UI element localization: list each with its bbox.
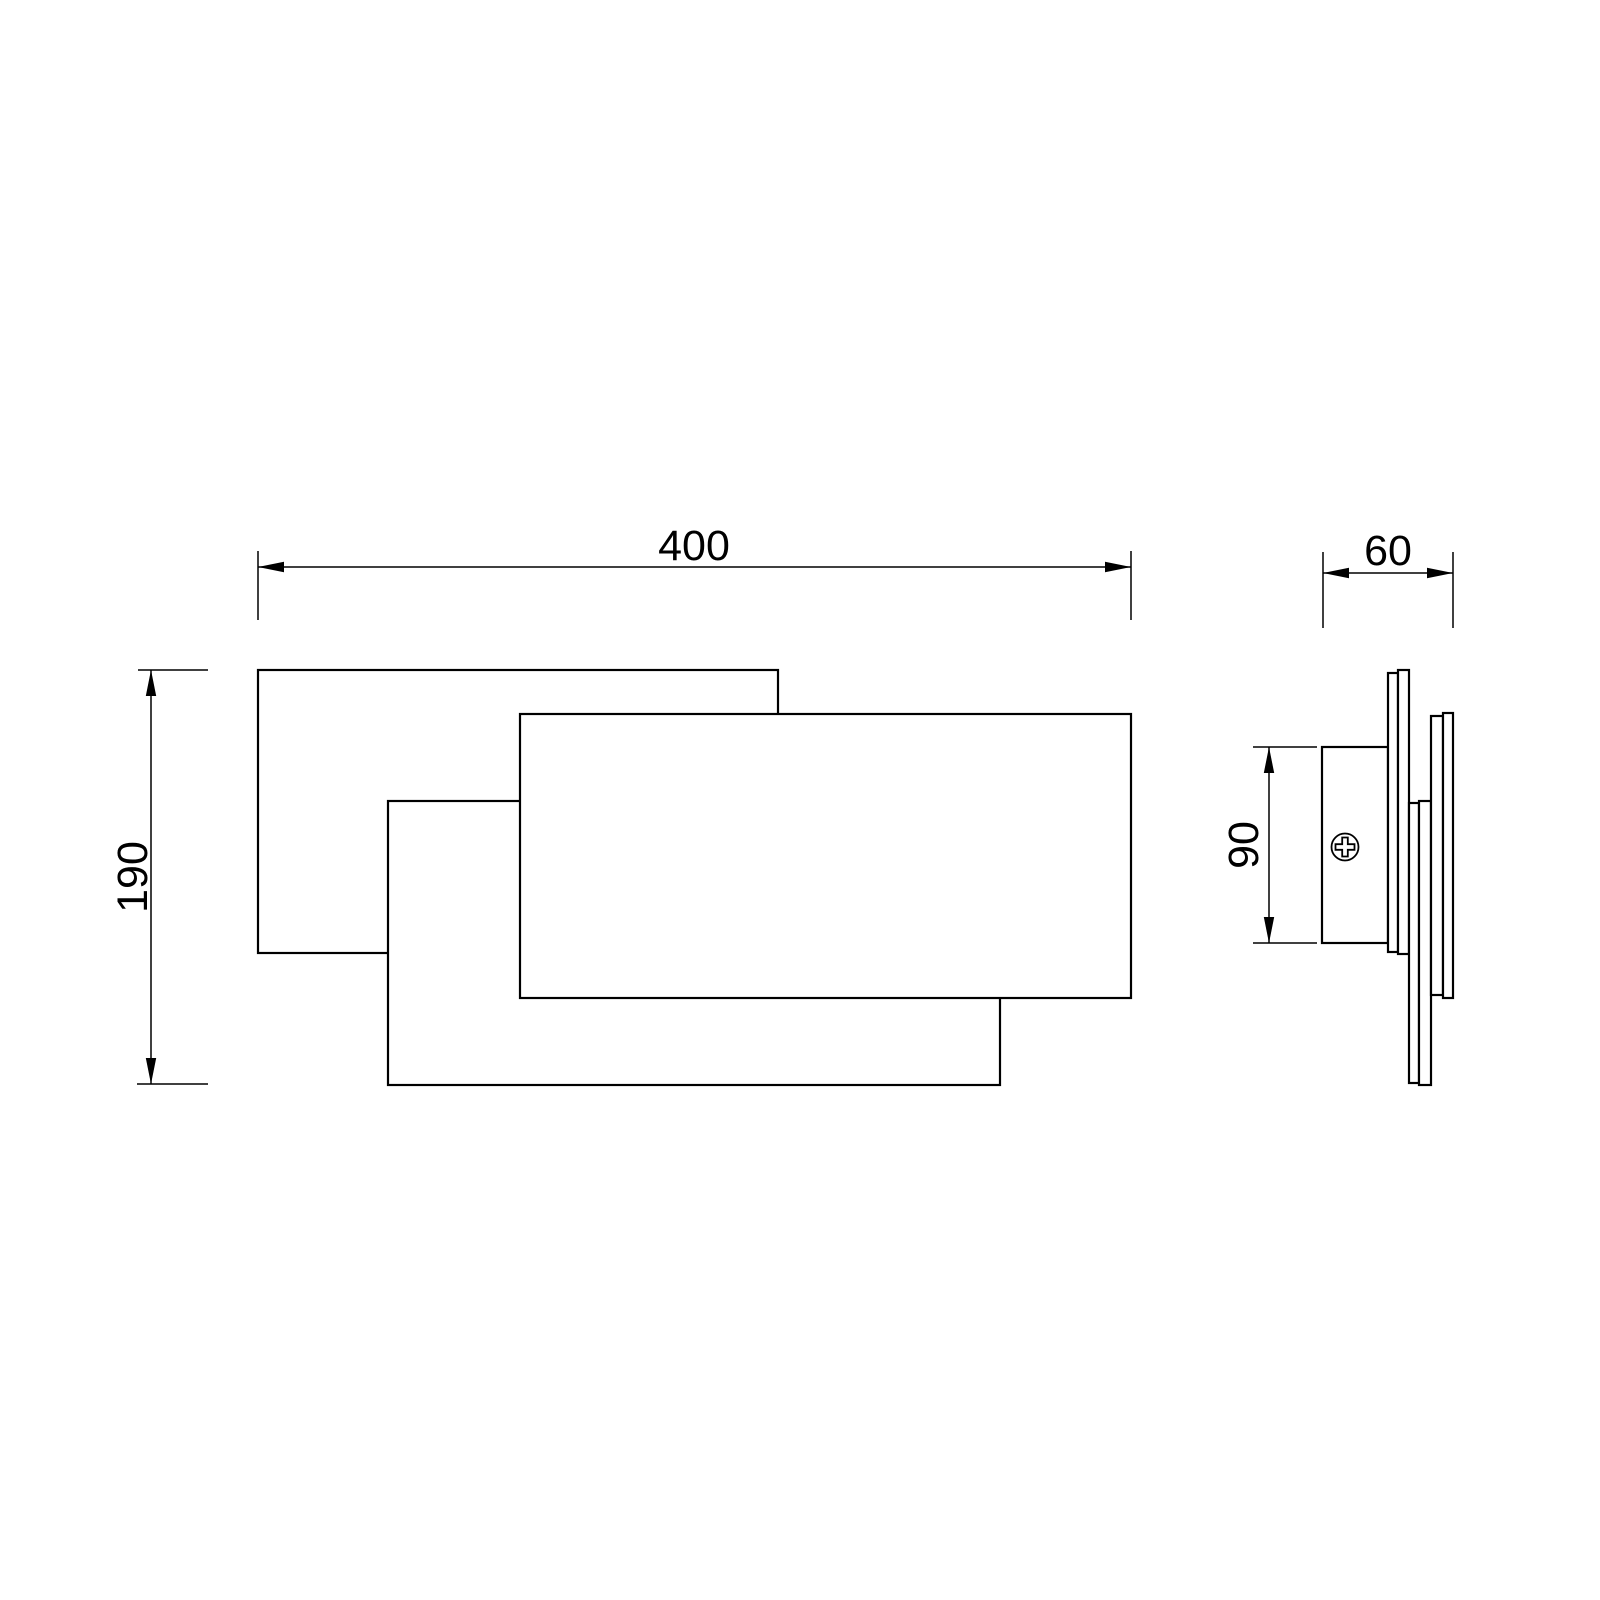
side-depth-dimension: 60 [1323,527,1453,628]
side-view [1322,670,1453,1085]
panel-front-top-edge-outer [1443,713,1453,998]
panel-back-left-edge-inner [1388,673,1398,952]
mount-height-dimension: 90 [1220,747,1317,943]
dimension-arrow-down-icon [1264,917,1274,943]
panel-front-top [520,714,1131,998]
dimension-arrow-right-icon [1105,562,1131,572]
technical-drawing-page: 400 190 [0,0,1600,1600]
dimension-arrow-up-icon [146,670,156,696]
front-width-dimension: 400 [258,522,1131,620]
panel-back-left-edge-outer [1398,670,1409,954]
dimension-arrow-right-icon [1427,568,1453,578]
panel-bottom-edge-inner [1409,803,1419,1083]
dimension-arrow-left-icon [1323,568,1349,578]
dimension-arrow-up-icon [1264,747,1274,773]
side-depth-label: 60 [1364,527,1412,575]
dimension-arrow-left-icon [258,562,284,572]
dimension-arrow-down-icon [146,1058,156,1084]
front-height-label: 190 [109,841,157,913]
panel-front-top-edge-inner [1431,716,1443,995]
front-width-label: 400 [658,522,730,570]
panel-bottom-edge-outer [1419,801,1431,1085]
mount-height-label: 90 [1220,821,1268,869]
technical-drawing: 400 190 [0,0,1600,1600]
front-height-dimension: 190 [109,670,208,1084]
front-view [258,670,1131,1085]
phillips-screw-icon [1332,834,1359,861]
